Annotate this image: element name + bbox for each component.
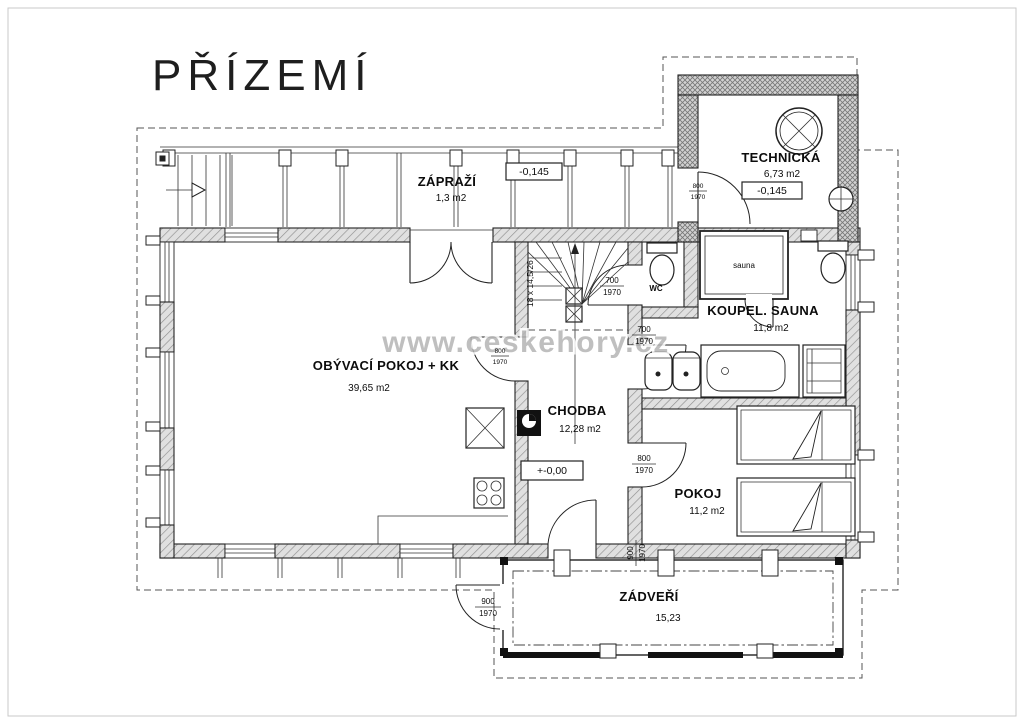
area-technicka: 6,73 m2 [764,169,801,180]
zadveri-terrace [456,550,843,658]
wc-toilet [650,255,674,285]
bath-toilet [821,253,845,283]
area-koupel: 11,8 m2 [753,323,789,334]
watermark: www.ceskehory.cz [381,326,669,359]
svg-text:1970: 1970 [638,544,647,562]
wall-vent [801,230,817,241]
door-label-pokoj: 800 1970 [632,454,656,475]
window-left-1 [160,242,174,302]
entry-steps [156,152,232,226]
label-wc: WC [649,284,663,293]
svg-text:1970: 1970 [493,359,508,366]
label-koupel: KOUPEL. SAUNA [707,303,819,318]
label-technicka: TECHNICKÁ [741,150,821,165]
walkline-arrow [571,243,579,254]
door-label-zadveri-outer: 900 1970 [475,597,501,618]
svg-text:900: 900 [481,597,495,606]
svg-text:700: 700 [637,325,651,334]
bed [737,478,855,536]
svg-text:1970: 1970 [603,288,621,297]
svg-text:1970: 1970 [635,466,653,475]
label-obyvaci: OBÝVACÍ POKOJ + KK [313,358,460,373]
label-chodba: CHODBA [548,403,607,418]
svg-text:800: 800 [693,183,704,190]
direction-arrow [192,183,205,197]
label-sauna: sauna [733,261,755,270]
svg-text:1970: 1970 [691,194,706,201]
elev-chodba: +-0,00 [537,465,567,477]
page-title: PŘÍZEMÍ [152,51,372,100]
window-bottom-1 [225,544,275,558]
area-obyvaci: 39,65 m2 [348,383,390,394]
bath-toilet-tank [818,241,848,251]
svg-text:1970: 1970 [635,337,653,346]
porch-joists [226,153,672,227]
bathtub [701,345,799,397]
counter-edge [378,516,508,544]
svg-text:1970: 1970 [479,609,497,618]
french-door [410,242,492,283]
label-pokoj: POKOJ [674,486,721,501]
svg-text:700: 700 [605,276,619,285]
elev-zaprazi: -0,145 [519,166,549,178]
window-top [225,228,278,242]
svg-text:800: 800 [637,454,651,463]
door-label-wc: 700 1970 [600,276,624,297]
porch-posts [163,150,674,166]
svg-text:800: 800 [495,348,506,355]
window-left-3 [160,470,174,525]
floorplan-drawing: PŘÍZEMÍ [0,0,1024,724]
beds [737,406,855,536]
window-left-2 [160,352,174,428]
door-wc [588,265,628,305]
floorplan-page: PŘÍZEMÍ [0,0,1024,724]
elev-technicka: -0,145 [757,185,787,197]
door-pokoj [642,443,686,487]
bed [737,406,855,464]
window-bottom-2 [400,544,453,558]
area-pokoj: 11,2 m2 [689,506,725,517]
label-zadveri: ZÁDVEŘÍ [619,589,678,604]
area-zadveri: 15,23 [655,613,680,624]
wc-toilet-tank [647,243,677,253]
label-zaprazi: ZÁPRAŽÍ [418,174,477,189]
area-chodba: 12,28 m2 [559,424,601,435]
area-zaprazi: 1,3 m2 [436,193,467,204]
shower-unit [803,345,845,397]
stair-note: 18 x 14,5/26 [525,260,535,307]
door-chodba-zadveri [548,500,596,544]
svg-text:900: 900 [626,546,635,560]
